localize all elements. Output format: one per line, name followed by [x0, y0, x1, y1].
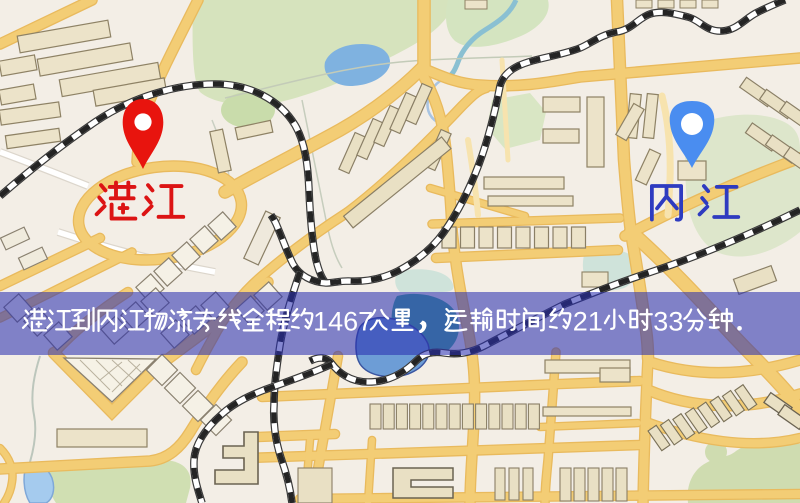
svg-text:1467: 1467	[313, 307, 373, 337]
svg-text:21: 21	[573, 307, 603, 337]
svg-text:33: 33	[653, 307, 683, 337]
